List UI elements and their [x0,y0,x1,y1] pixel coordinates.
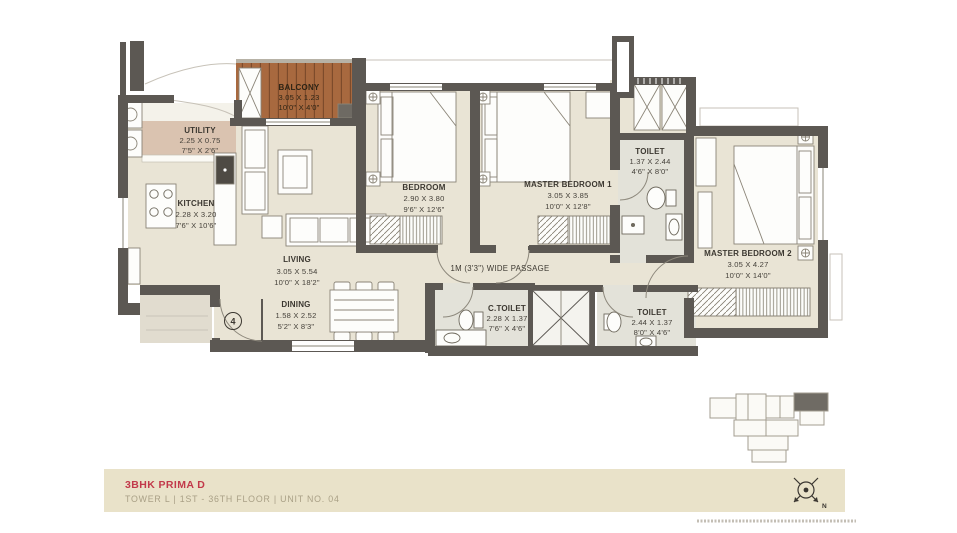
svg-text:MASTER BEDROOM 1: MASTER BEDROOM 1 [524,180,612,189]
svg-text:UTILITY: UTILITY [184,126,216,135]
master2-dresser [696,138,716,186]
balcony-railing [236,59,358,63]
bedroom-bed [366,90,456,186]
svg-text:4'6" X 8'0": 4'6" X 8'0" [632,167,669,176]
svg-text:7'6" X 4'6": 7'6" X 4'6" [489,324,526,333]
svg-text:MASTER BEDROOM 2: MASTER BEDROOM 2 [704,249,792,258]
key-plan-highlighted-unit [794,393,828,411]
label-kitchen: KITCHEN 2.28 X 3.20 7'6" X 10'6" [175,199,216,230]
svg-text:3.05 X 1.23: 3.05 X 1.23 [278,93,319,102]
svg-text:3.05 X 5.54: 3.05 X 5.54 [276,267,317,276]
svg-text:7'6" X 10'6": 7'6" X 10'6" [175,221,216,230]
master2-cabinet [698,192,712,248]
svg-text:10'0" X 4'0": 10'0" X 4'0" [278,103,319,112]
svg-text:4: 4 [230,317,235,327]
label-dining: DINING 1.58 X 2.52 5'2" X 8'3" [275,300,316,331]
svg-text:N: N [822,503,827,510]
svg-text:10'0" X 18'2": 10'0" X 18'2" [274,278,320,287]
floorplan-page: BALCONY 3.05 X 1.23 10'0" X 4'0" UTILITY… [0,0,957,533]
svg-text:1.58 X 2.52: 1.58 X 2.52 [275,311,316,320]
label-toilet-upper: TOILET 1.37 X 2.44 4'6" X 8'0" [629,147,670,176]
svg-text:10'0" X 14'0": 10'0" X 14'0" [725,271,771,280]
svg-text:2.25 X 0.75: 2.25 X 0.75 [179,136,220,145]
svg-text:LIVING: LIVING [283,255,311,264]
label-utility: UTILITY 2.25 X 0.75 7'5" X 2'6" [179,126,220,155]
svg-text:C.TOILET: C.TOILET [488,304,526,313]
svg-text:2.28 X 1.37: 2.28 X 1.37 [486,314,527,323]
plan-subtitle: TOWER L | 1ST - 36TH FLOOR | UNIT NO. 04 [125,494,340,504]
svg-text:2.28 X 3.20: 2.28 X 3.20 [175,210,216,219]
svg-text:8'0" X 4'6": 8'0" X 4'6" [634,328,671,337]
key-plan [710,393,828,462]
svg-text:BEDROOM: BEDROOM [402,183,445,192]
footer-bar: 3BHK PRIMA D TOWER L | 1ST - 36TH FLOOR … [104,469,856,521]
label-toilet-lower: TOILET 2.44 X 1.37 8'0" X 4'6" [631,308,672,337]
plan-title: 3BHK PRIMA D [125,479,205,491]
floorplan-canvas: BALCONY 3.05 X 1.23 10'0" X 4'0" UTILITY… [0,0,957,533]
label-balcony: BALCONY 3.05 X 1.23 10'0" X 4'0" [278,83,319,112]
svg-text:5'2" X 8'3": 5'2" X 8'3" [278,322,315,331]
utility-counter [142,103,236,121]
svg-text:9'6" X 12'6": 9'6" X 12'6" [403,205,444,214]
svg-text:3.05 X 3.85: 3.05 X 3.85 [547,191,588,200]
duct-inner [617,42,629,92]
svg-text:2.44 X 1.37: 2.44 X 1.37 [631,318,672,327]
service-shaft [532,290,590,346]
dining-table [330,282,398,341]
svg-text:KITCHEN: KITCHEN [178,199,215,208]
svg-text:DINING: DINING [281,300,310,309]
master1-desk [586,92,614,118]
passage-label: 1M (3'3") WIDE PASSAGE [450,264,549,273]
outside-corridor [140,295,212,343]
sofa-vertical [242,126,268,214]
svg-text:3.05 X 4.27: 3.05 X 4.27 [727,260,768,269]
svg-text:TOILET: TOILET [635,147,665,156]
label-bedroom: BEDROOM 2.90 X 3.80 9'6" X 12'6" [402,183,445,214]
label-c-toilet: C.TOILET 2.28 X 1.37 7'6" X 4'6" [486,304,527,333]
svg-text:2.90 X 3.80: 2.90 X 3.80 [403,194,444,203]
svg-text:7'5" X 2'6": 7'5" X 2'6" [182,146,219,155]
svg-text:TOILET: TOILET [637,308,667,317]
svg-text:BALCONY: BALCONY [279,83,320,92]
svg-text:10'0" X 12'8": 10'0" X 12'8" [545,202,591,211]
svg-text:1.37 X 2.44: 1.37 X 2.44 [629,157,670,166]
hob [146,184,176,228]
